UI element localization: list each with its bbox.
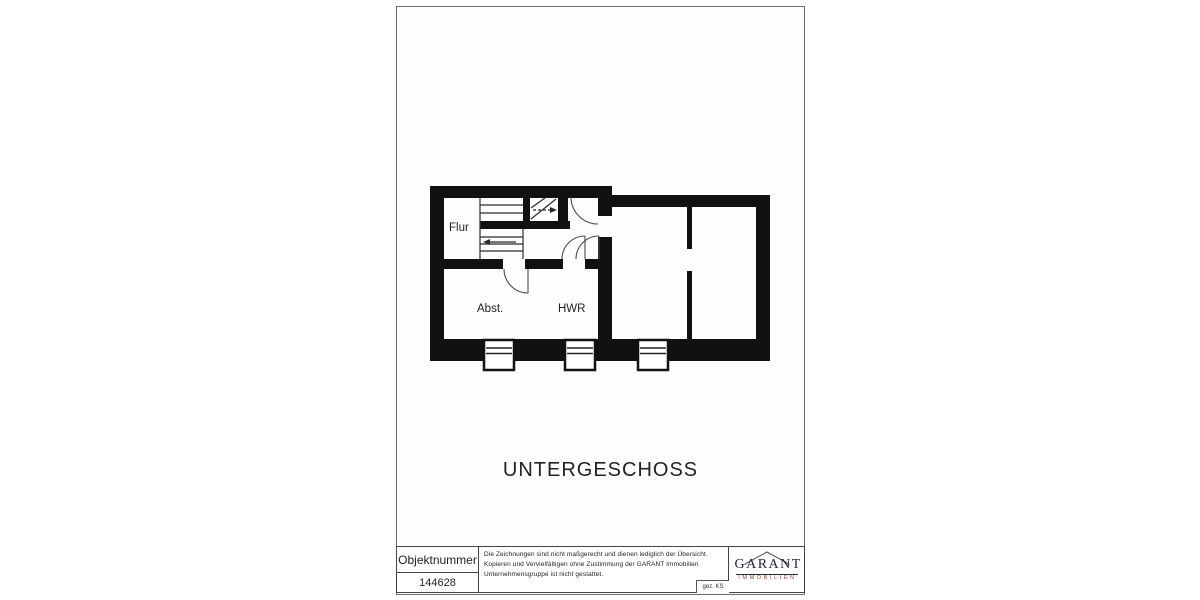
light-well (484, 340, 514, 370)
disclaimer-text: Die Zeichnungen sind nicht maßgerecht un… (484, 550, 723, 579)
floor-title: UNTERGESCHOSS (397, 459, 804, 482)
object-number-label: Objektnummer (397, 547, 478, 573)
light-well (565, 340, 595, 370)
light-wells (484, 340, 668, 370)
room-label-hwr: HWR (558, 303, 585, 315)
screenshot-canvas: { "sheet": { "plan": { "floor_title": "U… (0, 0, 1200, 600)
garant-logo: GARANT IMMOBILIEN (735, 558, 799, 581)
logo-cell: GARANT IMMOBILIEN (729, 547, 804, 592)
title-block: Objektnummer 144628 Die Zeichnungen sind… (396, 546, 805, 593)
floor-plan-drawing: Flur Abst. HWR (425, 181, 775, 381)
room-label-flur: Flur (449, 222, 469, 234)
drawn-by-box: gez. KS (696, 580, 729, 593)
light-well (638, 340, 668, 370)
object-number-cell: Objektnummer 144628 (397, 547, 479, 592)
logo-subtitle: IMMOBILIEN (735, 576, 799, 582)
disclaimer-cell: Die Zeichnungen sind nicht maßgerecht un… (479, 547, 729, 592)
room-label-abst: Abst. (477, 303, 503, 315)
object-number-value: 144628 (397, 573, 478, 592)
logo-name: GARANT (735, 558, 799, 572)
walls (430, 186, 770, 361)
plan-sheet: Flur Abst. HWR UNTERGESCHOSS Objektnumme… (396, 6, 805, 595)
